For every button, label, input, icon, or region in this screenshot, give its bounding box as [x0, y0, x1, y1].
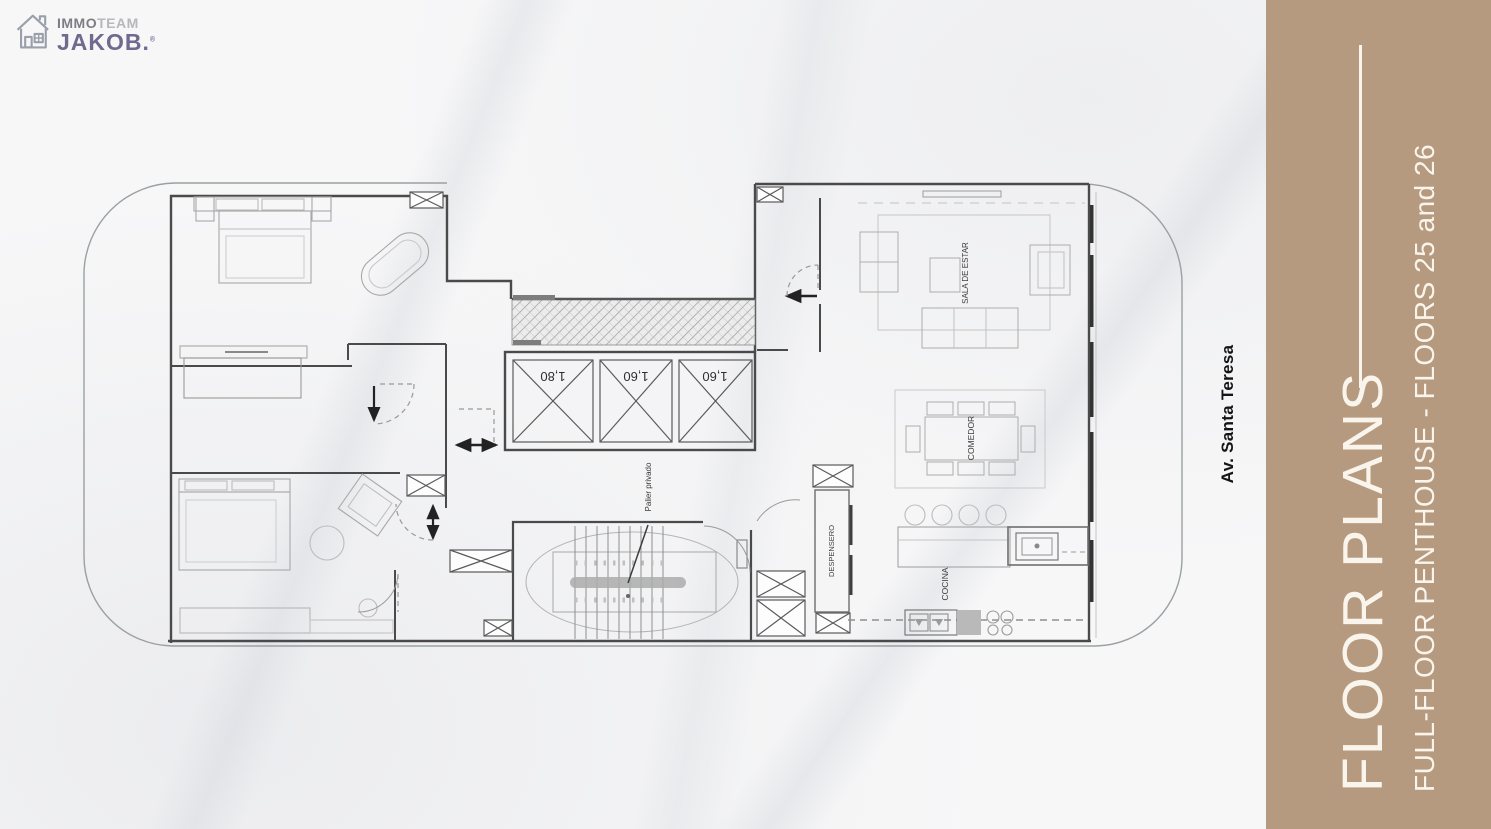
presentation-slide: 1,80 1,60 1,60 — [0, 0, 1491, 829]
slide-subtitle: FULL-FLOOR PENTHOUSE - FLOORS 25 and 26 — [1409, 144, 1441, 792]
immoteam-jakob-logo: IMMOTEAM JAKOB.® — [13, 11, 156, 54]
logo-line-1: IMMOTEAM — [57, 16, 156, 30]
bedroom-2-furniture — [179, 474, 402, 633]
elevator-dim-3: 1,60 — [702, 369, 727, 384]
label-sala-de-estar: SALA DE ESTAR — [961, 242, 970, 304]
title-sidebar: FLOOR PLANS FULL-FLOOR PENTHOUSE - FLOOR… — [1266, 0, 1491, 829]
hatched-corridor — [512, 295, 755, 345]
slide-title: FLOOR PLANS — [1330, 371, 1396, 792]
elevator-dim-2: 1,60 — [623, 369, 648, 384]
label-cocina: COCINA — [940, 567, 950, 600]
marble-background: 1,80 1,60 1,60 — [0, 0, 1266, 829]
label-comedor: COMEDOR — [966, 416, 976, 460]
terrace-boundary — [84, 183, 1182, 646]
label-palier-privado: Palier privado — [644, 462, 653, 511]
bedroom-1-furniture — [180, 197, 436, 398]
kitchen-furniture — [848, 505, 1088, 635]
logo-line-2: JAKOB.® — [57, 31, 156, 54]
house-icon — [13, 11, 55, 51]
registered-mark: ® — [150, 36, 156, 43]
label-despensero: DESPENSERO — [827, 525, 836, 577]
window-wall — [1090, 192, 1096, 638]
floor-plan-drawing: 1,80 1,60 1,60 — [0, 0, 1266, 829]
street-label: Av. Santa Teresa — [1218, 345, 1238, 484]
elevator-dim-1: 1,80 — [540, 369, 565, 384]
elevator-bank: 1,80 1,60 1,60 — [505, 352, 755, 450]
decorative-rule — [1359, 45, 1362, 388]
